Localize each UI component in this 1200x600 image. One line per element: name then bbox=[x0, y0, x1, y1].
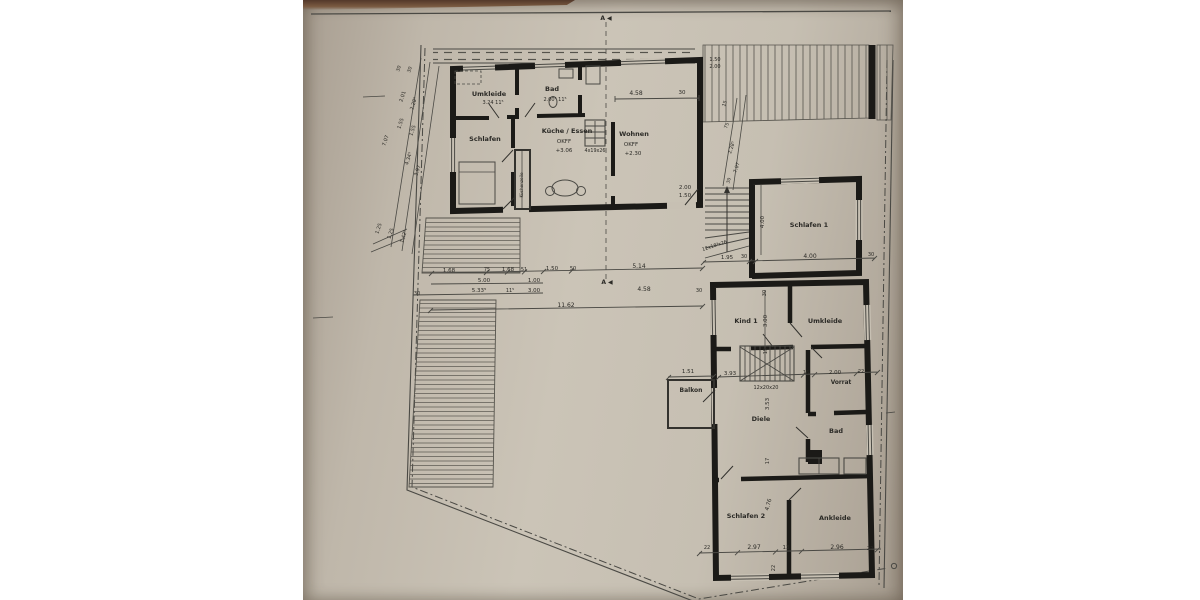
dim-label: 1.68 bbox=[443, 268, 456, 274]
dim-label: 30 bbox=[406, 66, 414, 74]
dim-label: 1.68 bbox=[502, 267, 515, 273]
room-bad-upper: Bad bbox=[545, 85, 559, 93]
kueche-okff: OKFF bbox=[557, 139, 571, 145]
wohnen-level: +2.30 bbox=[625, 151, 642, 157]
room-balkon: Balkon bbox=[680, 387, 703, 394]
room-schlafen-upper: Schlafen bbox=[469, 135, 501, 143]
room-schlafen-2: Schlafen 2 bbox=[727, 512, 765, 520]
dim-label: 5.33⁵ bbox=[472, 287, 486, 294]
room-ankleide: Ankleide bbox=[819, 514, 851, 522]
dim-label: 7.07 bbox=[381, 134, 390, 146]
dim-label: 22 bbox=[867, 546, 873, 552]
dim-label: 30 bbox=[741, 254, 747, 260]
dim-label: 3.00 bbox=[763, 314, 769, 327]
floorplan-photo: A ◀A ◀Umkleide3.24 11⁵Bad2.00⁵ 11⁵Schlaf… bbox=[303, 0, 903, 600]
dim-label: 2.00 bbox=[679, 185, 692, 191]
dim-label: 1.95 bbox=[721, 255, 734, 261]
dim-label: 22 bbox=[771, 565, 777, 571]
page-background: A ◀A ◀Umkleide3.24 11⁵Bad2.00⁵ 11⁵Schlaf… bbox=[0, 0, 1200, 600]
dim-label: 2.96 bbox=[830, 544, 844, 551]
dim-label: 30 bbox=[414, 291, 420, 297]
room-umkleide-right: Umkleide bbox=[808, 317, 843, 325]
dim-label: 30 bbox=[762, 290, 768, 296]
dim-label: 75 bbox=[723, 122, 731, 130]
dim-label: 4.58 bbox=[637, 286, 651, 293]
dim-label: 13 bbox=[783, 545, 790, 551]
dim-label: 15 bbox=[763, 348, 769, 354]
room-diele: Diele bbox=[752, 415, 771, 423]
dim-label: 3.53 bbox=[765, 397, 771, 410]
dim-label: 1.50 bbox=[546, 266, 559, 272]
room-wohnen: Wohnen bbox=[619, 130, 649, 138]
dim-label: 30 bbox=[868, 252, 874, 258]
dim-label: 5.14 bbox=[632, 263, 646, 270]
stairs-4x19x26: 4x19x26 bbox=[585, 148, 606, 154]
dim-label: 1.50 bbox=[679, 193, 692, 199]
dim-label: 1.55 bbox=[396, 117, 405, 129]
terrace-hatching bbox=[409, 45, 893, 487]
dim-label: 2.01 bbox=[398, 90, 407, 102]
dim-label: 7.07 bbox=[733, 162, 742, 174]
dim-label: 17 bbox=[765, 458, 771, 464]
dim-label: 1.51 bbox=[682, 369, 694, 375]
dim-label: 2.28⁵ bbox=[727, 141, 737, 155]
dim-label: 1.50 bbox=[709, 57, 720, 63]
dim-label: 2.28⁵ bbox=[409, 97, 419, 111]
dim-label: 1.25 bbox=[374, 222, 383, 234]
stairs-12x20x20: 12x20x20 bbox=[753, 385, 778, 391]
dim-label: 30 bbox=[696, 288, 702, 294]
wohnen-okff: OKFF bbox=[624, 142, 638, 148]
dim-label: 22 bbox=[704, 545, 710, 551]
dim-label: 51 bbox=[521, 267, 527, 273]
stairs-12x18x26: 12x18³x26 bbox=[701, 239, 728, 253]
dim-label: 4.00 bbox=[760, 215, 766, 228]
dim-label: 11.62 bbox=[557, 302, 574, 309]
dim-label: 50 bbox=[570, 266, 576, 272]
dim-label: 16 bbox=[803, 370, 809, 376]
room-umkleide-upper: Umkleide bbox=[472, 90, 507, 98]
dim-label: 3.00 bbox=[528, 288, 541, 294]
dim-label: 2.00 bbox=[709, 64, 720, 70]
floorplan-drawing: A ◀A ◀Umkleide3.24 11⁵Bad2.00⁵ 11⁵Schlaf… bbox=[303, 0, 903, 600]
dim-label: 75 bbox=[484, 267, 490, 273]
dim-label: 30 bbox=[679, 90, 686, 96]
dim-label: 4.00 bbox=[803, 253, 817, 260]
room-kueche-essen: Küche / Essen bbox=[542, 127, 593, 135]
kueche-level: +3.06 bbox=[556, 148, 573, 154]
dim-label: 4.58 bbox=[629, 90, 643, 97]
dim-label: 30 bbox=[395, 65, 403, 73]
dim-label: 1.25 bbox=[386, 227, 395, 239]
section-marker-mid: A ◀ bbox=[601, 279, 613, 286]
dim-label: 11⁵ bbox=[506, 288, 514, 294]
dim-label: 3.24 11⁵ bbox=[482, 100, 503, 106]
dim-label: 2.00⁵ 11⁵ bbox=[543, 97, 566, 103]
dim-label: 1.00 bbox=[528, 278, 541, 284]
room-kind-1: Kind 1 bbox=[734, 317, 758, 325]
room-schlafen-1: Schlafen 1 bbox=[790, 221, 829, 229]
dim-label: 3.93 bbox=[724, 371, 737, 377]
room-vorrat: Vorrat bbox=[831, 380, 852, 386]
room-bad-right: Bad bbox=[829, 427, 843, 435]
section-marker-top: A ◀ bbox=[600, 15, 612, 22]
wall-nib bbox=[808, 450, 822, 464]
dim-label: 2.00 bbox=[829, 370, 842, 376]
dim-label: 30 bbox=[725, 177, 733, 184]
dim-label: 2.97 bbox=[747, 544, 761, 551]
kitchen-unit-label: Küchenzeile bbox=[519, 172, 524, 197]
dim-label: 5.00 bbox=[478, 278, 491, 284]
dim-label: 4.76 bbox=[765, 498, 774, 512]
dim-label: 22 bbox=[858, 369, 864, 375]
